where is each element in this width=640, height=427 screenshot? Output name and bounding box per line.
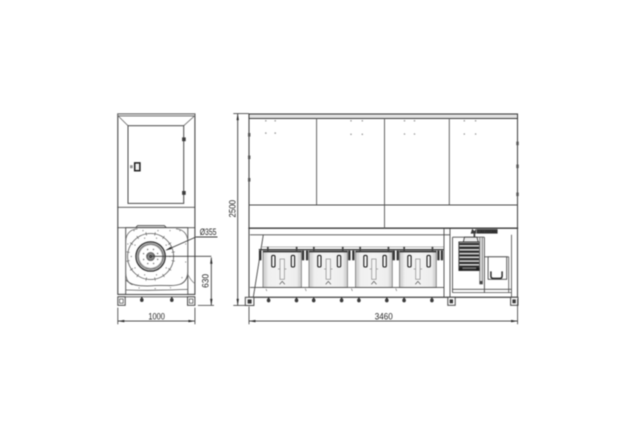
svg-text:CALISKAN: CALISKAN: [477, 230, 497, 234]
svg-text:1000: 1000: [148, 311, 165, 321]
svg-text:3460: 3460: [375, 311, 393, 321]
svg-text:Ø355: Ø355: [200, 227, 217, 237]
svg-text:630: 630: [200, 274, 210, 288]
svg-text:2500: 2500: [228, 200, 238, 218]
